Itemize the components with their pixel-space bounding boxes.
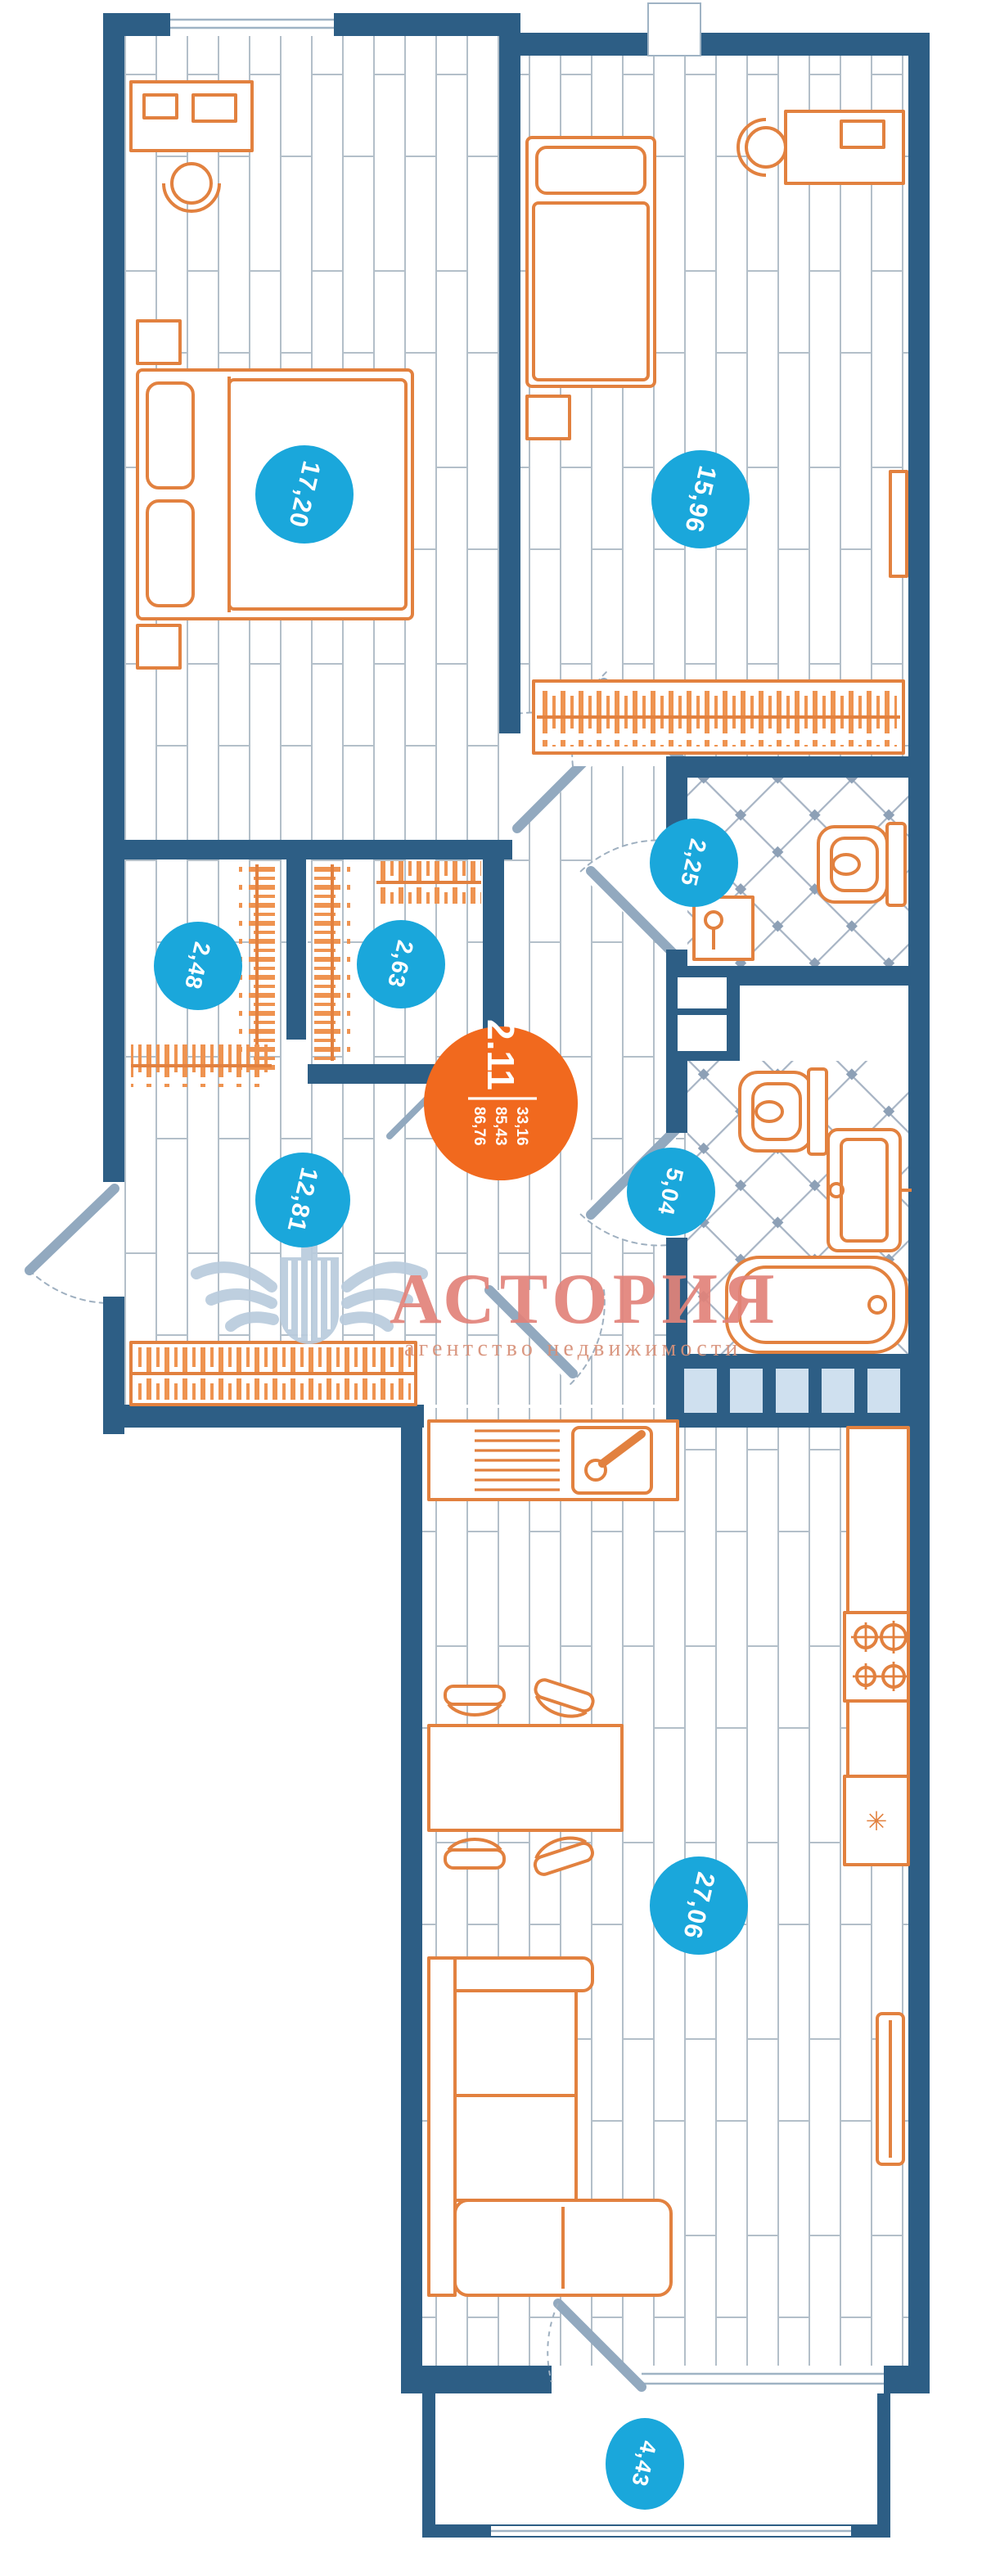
room-label-wc-small: 2,25	[650, 819, 738, 907]
badge-apartment-area: 85,43	[492, 1107, 509, 1146]
wall-closet-divider	[286, 840, 306, 1040]
stove-icon	[845, 1613, 910, 1701]
room-label-balcony: 4,43	[606, 2418, 684, 2510]
wardrobe-hallway	[131, 1342, 416, 1405]
kitchen-wall-inset	[730, 1369, 763, 1413]
room-label-bathroom-large: 5,04	[627, 1148, 715, 1236]
wall-right	[908, 33, 930, 2393]
toilet-wc-small	[818, 823, 905, 905]
wall-wc-left-b	[666, 950, 687, 966]
kitchen-counter-right	[848, 1428, 908, 1617]
vent-inset-1	[678, 977, 727, 1008]
tv-panel-icon	[890, 471, 907, 576]
vanity-bathroom-large	[828, 1130, 912, 1251]
kitchen-counter-top	[429, 1421, 678, 1500]
window-balcony-door-side	[642, 2366, 884, 2393]
wall-balcony-left	[422, 2393, 435, 2538]
nightstand-icon	[137, 321, 180, 363]
badge-living-area: 33,16	[513, 1107, 530, 1146]
shaft-top-notch	[648, 3, 700, 56]
floor-plan-svg: ✳ АСТОРИЯ агентство недвижи	[0, 0, 982, 2576]
room-label-kitchen-living: 27,06	[650, 1856, 748, 1955]
wall-divider-bedrooms	[499, 13, 520, 733]
room-label-hallway: 12,81	[255, 1153, 350, 1247]
kitchen-counter-mid	[848, 1701, 908, 1776]
chair-icon	[172, 164, 211, 203]
wall-hall-bottom	[103, 1405, 424, 1428]
room-label-closet-left: 2,48	[154, 922, 242, 1010]
wall-bedroom-left-bottom	[103, 840, 512, 859]
wall-kitchen-left	[401, 1405, 422, 2393]
sink-wc-small	[694, 897, 753, 959]
wall-balcony-right	[877, 2393, 890, 2538]
kitchen-wall-inset	[684, 1369, 717, 1413]
tv-cabinet-icon	[877, 2014, 903, 2164]
wall-closet-right-side	[483, 840, 504, 1033]
badge-total-area: 86,76	[471, 1107, 488, 1146]
wall-top-right-room	[499, 33, 930, 56]
wall-closet-right-bottom	[308, 1064, 445, 1084]
chair-icon	[746, 128, 786, 167]
wardrobe-bedroom-right	[534, 681, 903, 753]
kitchen-wall-inset	[822, 1369, 854, 1413]
nightstand-icon	[527, 396, 570, 439]
badge-apartment-number: 2.11	[480, 1019, 522, 1090]
room-label-bedroom-right: 15,96	[651, 450, 750, 548]
kitchen-wall-inset	[776, 1369, 809, 1413]
wall-wc-bath-divider	[740, 966, 908, 986]
watermark-title: АСТОРИЯ	[390, 1260, 779, 1339]
room-label-bedroom-left: 17,20	[255, 445, 354, 544]
bed-bedroom-right	[527, 138, 655, 386]
wall-left-upper	[103, 13, 124, 1182]
room-label-closet-right: 2,63	[357, 920, 445, 1008]
window-bedroom-left	[170, 13, 334, 36]
vent-inset-2	[678, 1015, 727, 1051]
door-arc-entry	[29, 1270, 115, 1303]
wall-bedroom-right-bottom	[666, 756, 930, 778]
door-leaf-entry	[29, 1189, 115, 1270]
watermark-subtitle: агентство недвижимости	[404, 1336, 742, 1361]
wall-kitchen-bottom-left	[401, 2366, 552, 2393]
fridge-snowflake-icon: ✳	[866, 1806, 888, 1837]
toilet-bathroom-large	[740, 1069, 827, 1154]
wall-bath-left-a	[666, 1061, 687, 1133]
kitchen-wall-inset	[867, 1369, 900, 1413]
wall-kitchen-bottom-right	[884, 2366, 930, 2393]
nightstand-icon	[137, 625, 180, 668]
